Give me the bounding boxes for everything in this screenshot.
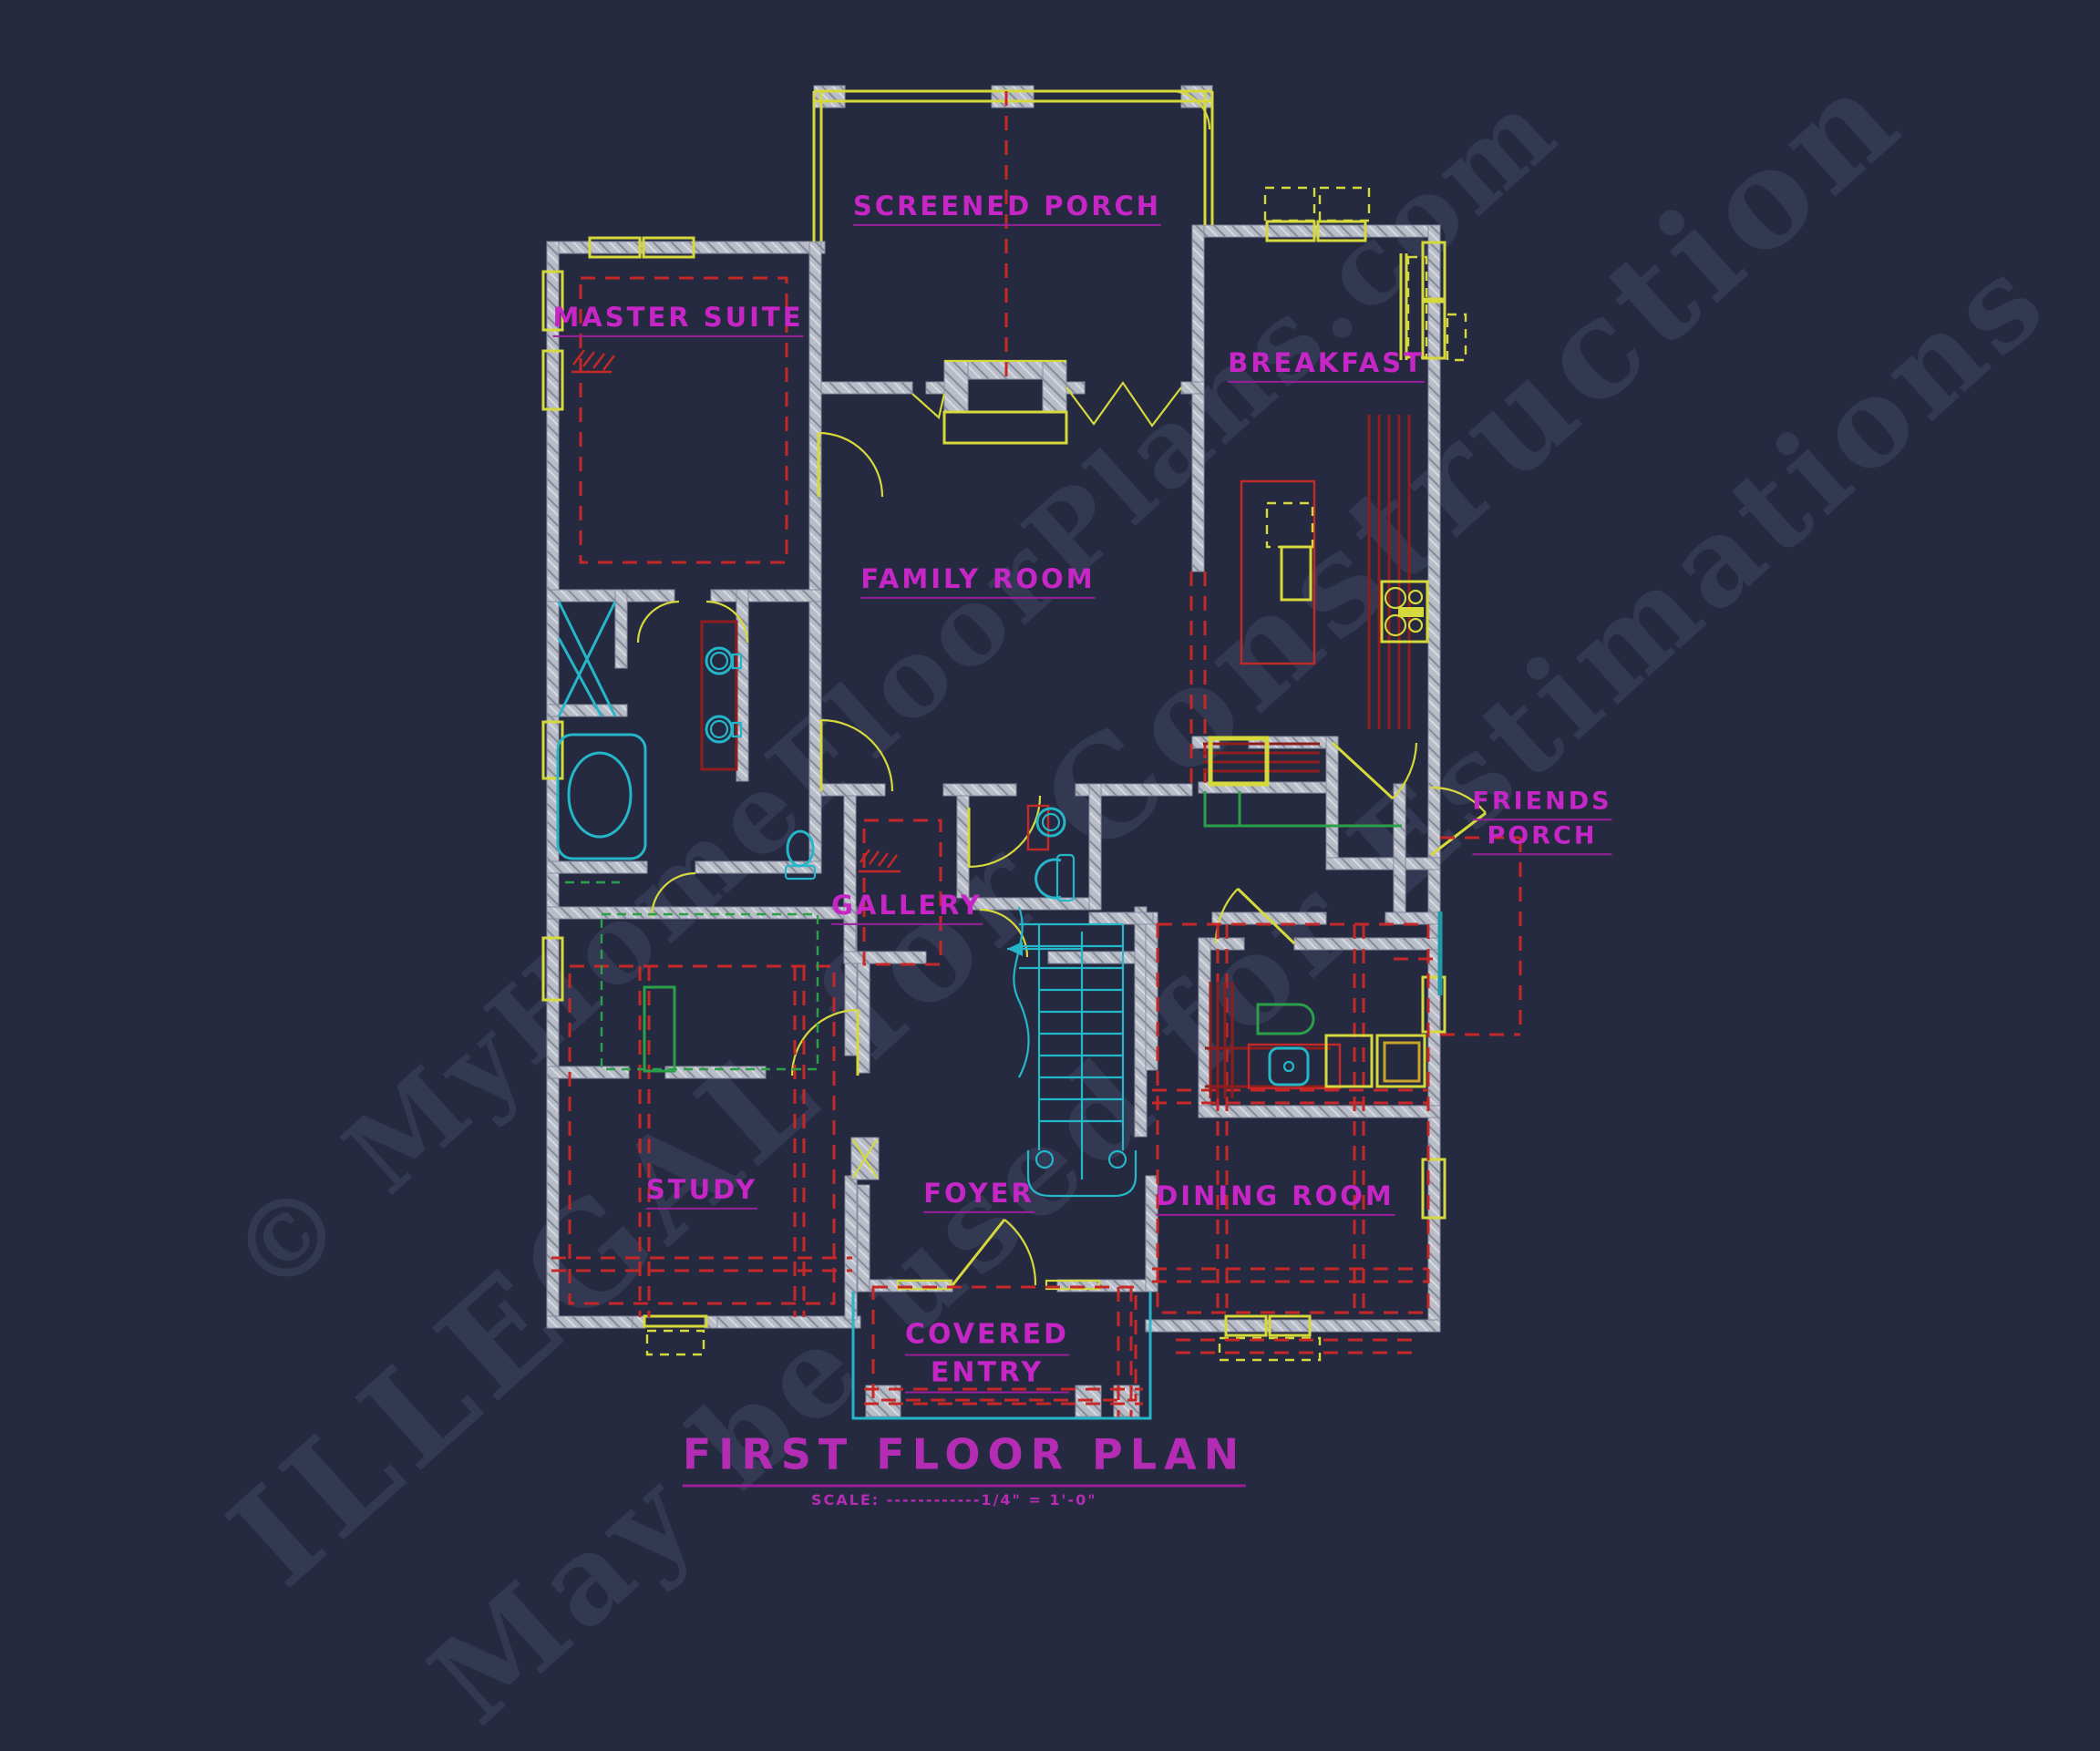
plumbing-fixtures	[558, 602, 1440, 1418]
room-label-screened-porch: SCREENED PORCH	[853, 190, 1161, 226]
plan-title: FIRST FLOOR PLAN	[683, 1430, 1246, 1488]
exterior-walls	[547, 86, 1440, 1416]
room-label-master-suite: MASTER SUITE	[552, 301, 803, 337]
plan-scale-note: SCALE: ------------1/4" = 1'-0"	[811, 1491, 1097, 1509]
closets-builtins	[565, 791, 1402, 1071]
room-label-study: STUDY	[646, 1173, 757, 1210]
room-label-foyer: FOYER	[923, 1177, 1035, 1213]
room-label-covered-entry: COVERED ENTRY	[905, 1318, 1069, 1394]
ceiling-dashed-lines	[551, 91, 1520, 1418]
room-label-family-room: FAMILY ROOM	[860, 562, 1095, 599]
room-label-gallery: GALLERY	[831, 889, 983, 925]
room-label-dining-room: DINING ROOM	[1156, 1179, 1395, 1216]
cabinetry	[702, 415, 1409, 1098]
floor-plan-canvas: © MyHomeFloorPlans.com ILLEGAL for Const…	[0, 0, 2100, 1575]
room-label-friends-porch: FRIENDS PORCH	[1472, 786, 1611, 855]
room-label-breakfast: BREAKFAST	[1228, 346, 1425, 383]
